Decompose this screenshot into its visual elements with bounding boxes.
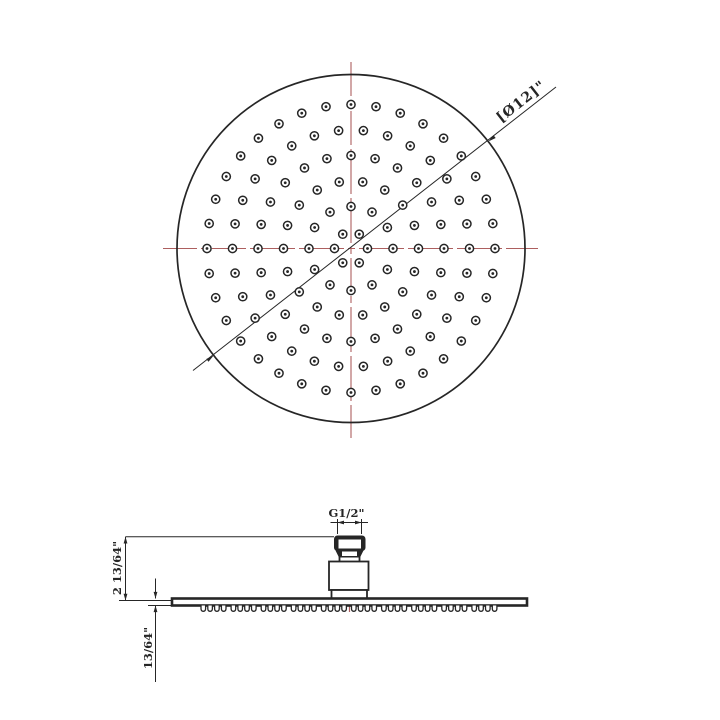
nozzle-hole-dot — [269, 201, 272, 204]
nozzle-hole-dot — [298, 204, 301, 207]
nozzle-tooth — [472, 606, 477, 612]
nozzle-tooth — [358, 606, 363, 612]
nozzle-tooth — [275, 606, 280, 612]
nozzle-hole-dot — [225, 175, 228, 178]
nozzle-hole-dot — [474, 319, 477, 322]
nozzle-hole-dot — [460, 340, 463, 343]
nozzle-hole-dot — [290, 350, 293, 353]
nozzle-hole-dot — [383, 306, 386, 309]
nozzle-hole-dot — [270, 335, 273, 338]
nozzle-tooth — [432, 606, 437, 612]
thread-arrow-right — [355, 521, 362, 525]
nozzle-tooth — [479, 606, 484, 612]
thread-dimension-label: G1/2" — [328, 506, 364, 520]
nozzle-hole-dot — [308, 247, 311, 250]
nozzle-tooth — [402, 606, 407, 612]
nozzle-tooth — [261, 606, 266, 612]
nozzle-hole-dot — [491, 222, 494, 225]
nozzle-tooth — [352, 606, 357, 612]
thickness-arrow-down — [154, 592, 158, 599]
thickness-arrow-up — [154, 606, 158, 613]
nozzle-hole-dot — [429, 159, 432, 162]
nozzle-hole-dot — [409, 144, 412, 147]
nozzle-hole-dot — [350, 340, 353, 343]
nozzle-hole-dot — [278, 122, 281, 125]
nozzle-hole-dot — [341, 261, 344, 264]
nozzle-tooth — [486, 606, 491, 612]
nozzle-hole-dot — [278, 372, 281, 375]
nozzle-tooth — [238, 606, 243, 612]
nozzle-hole-dot — [241, 199, 244, 202]
nozzle-hole-dot — [333, 247, 336, 250]
nozzle-hole-dot — [361, 181, 364, 184]
nozzle-hole-dot — [350, 391, 353, 394]
diameter-dimension-label: [Ø12]" — [494, 78, 550, 126]
nozzle-hole-dot — [362, 365, 365, 368]
nozzle-hole-dot — [329, 283, 332, 286]
nozzle-tooth — [291, 606, 296, 612]
nozzle-hole-dot — [350, 154, 353, 157]
diameter-dimension-line — [193, 87, 556, 371]
nozzle-hole-dot — [316, 306, 319, 309]
nozzle-hole-dot — [396, 328, 399, 331]
nozzle-hole-dot — [401, 290, 404, 293]
nozzle-tooth — [462, 606, 467, 612]
nozzle-hole-dot — [366, 247, 369, 250]
nozzle-hole-dot — [485, 296, 488, 299]
nozzle-tooth — [455, 606, 460, 612]
stem-nut-recess — [342, 552, 357, 557]
nozzle-hole-dot — [282, 247, 285, 250]
height-arrow-down — [124, 594, 128, 601]
nozzle-hole-dot — [313, 226, 316, 229]
nozzle-hole-dot — [303, 328, 306, 331]
nozzle-hole-dot — [206, 247, 209, 250]
nozzle-hole-dot — [399, 382, 402, 385]
nozzle-hole-dot — [234, 222, 237, 225]
nozzle-hole-dot — [284, 181, 287, 184]
nozzle-tooth — [425, 606, 430, 612]
nozzle-tooth — [449, 606, 454, 612]
nozzle-hole-dot — [430, 201, 433, 204]
nozzle-hole-dot — [445, 317, 448, 320]
nozzle-hole-dot — [350, 103, 353, 106]
thread-fitting-recess — [339, 540, 362, 549]
head-plate — [172, 599, 527, 606]
nozzle-hole-dot — [422, 372, 425, 375]
nozzle-hole-dot — [316, 189, 319, 192]
nozzle-tooth — [365, 606, 370, 612]
nozzle-hole-dot — [468, 247, 471, 250]
nozzle-hole-dot — [401, 204, 404, 207]
nozzle-tooth — [305, 606, 310, 612]
nozzle-hole-dot — [386, 134, 389, 137]
nozzle-tooth — [201, 606, 206, 612]
nozzle-hole-dot — [303, 167, 306, 170]
nozzle-hole-dot — [313, 360, 316, 363]
nozzle-hole-dot — [325, 105, 328, 108]
nozzle-tooth — [312, 606, 317, 612]
nozzle-hole-dot — [338, 314, 341, 317]
nozzle-hole-dot — [361, 314, 364, 317]
nozzle-hole-dot — [474, 175, 477, 178]
nozzle-hole-dot — [257, 357, 260, 360]
nozzle-hole-dot — [326, 337, 329, 340]
top-view: [Ø12]" — [163, 62, 556, 438]
nozzle-hole-dot — [386, 226, 389, 229]
nozzle-hole-dot — [260, 271, 263, 274]
nozzle-hole-dot — [466, 222, 469, 225]
nozzle-hole-dot — [300, 382, 303, 385]
nozzle-tooth — [442, 606, 447, 612]
nozzle-hole-dot — [442, 137, 445, 140]
nozzle-hole-dot — [254, 317, 257, 320]
nozzle-hole-dot — [417, 247, 420, 250]
nozzle-hole-dot — [374, 337, 377, 340]
nozzle-hole-dot — [257, 247, 260, 250]
nozzle-hole-dot — [234, 272, 237, 275]
nozzle-hole-dot — [375, 389, 378, 392]
height-arrow-up — [124, 537, 128, 544]
nozzle-hole-dot — [208, 272, 211, 275]
nozzle-hole-dot — [300, 112, 303, 115]
nozzle-hole-dot — [383, 189, 386, 192]
nozzle-hole-dot — [415, 181, 418, 184]
nozzle-hole-dot — [396, 167, 399, 170]
nozzle-hole-dot — [257, 137, 260, 140]
stem-body — [329, 562, 369, 591]
nozzle-tooth — [268, 606, 273, 612]
nozzle-hole-dot — [415, 313, 418, 316]
nozzle-hole-dot — [494, 247, 497, 250]
nozzle-hole-dot — [214, 296, 217, 299]
nozzle-hole-dot — [358, 261, 361, 264]
dimension-arrow-lower — [206, 356, 213, 362]
nozzle-hole-dot — [329, 211, 332, 214]
height-dimension-label: 2 13/64" — [110, 541, 124, 595]
nozzle-hole-dot — [239, 340, 242, 343]
nozzle-hole-dot — [225, 319, 228, 322]
nozzle-hole-dot — [214, 198, 217, 201]
nozzle-tooth — [282, 606, 287, 612]
nozzle-hole-dot — [422, 122, 425, 125]
nozzle-hole-dot — [439, 271, 442, 274]
nozzle-hole-dot — [286, 224, 289, 227]
nozzle-hole-dot — [358, 233, 361, 236]
nozzle-hole-dot — [338, 181, 341, 184]
nozzle-hole-dot — [466, 272, 469, 275]
nozzle-hole-dot — [439, 223, 442, 226]
nozzle-hole-dot — [326, 157, 329, 160]
nozzle-tooth — [342, 606, 347, 612]
nozzle-hole-dot — [260, 223, 263, 226]
nozzle-hole-dot — [290, 144, 293, 147]
nozzle-hole-dot — [350, 289, 353, 292]
nozzle-hole-dot — [442, 357, 445, 360]
nozzle-tooth — [215, 606, 220, 612]
nozzle-hole-dot — [313, 268, 316, 271]
nozzle-hole-dot — [241, 295, 244, 298]
nozzle-hole-dot — [337, 365, 340, 368]
nozzle-tooth — [335, 606, 340, 612]
nozzle-hole-dot — [254, 177, 257, 180]
nozzle-hole-dot — [325, 389, 328, 392]
nozzle-hole-dot — [429, 335, 432, 338]
nozzle-tooth — [252, 606, 257, 612]
nozzle-hole-dot — [208, 222, 211, 225]
nozzle-hole-dot — [485, 198, 488, 201]
nozzle-hole-dot — [284, 313, 287, 316]
nozzle-hole-dot — [337, 129, 340, 132]
nozzle-hole-dot — [430, 294, 433, 297]
nozzle-hole-dot — [350, 205, 353, 208]
technical-drawing: [Ø12]" 2 13/64" 13/64" G1/2" — [0, 0, 720, 720]
nozzle-hole-dot — [269, 294, 272, 297]
thickness-dimension-label: 13/64" — [141, 627, 155, 669]
nozzle-hole-dot — [445, 177, 448, 180]
nozzle-hole-dot — [375, 105, 378, 108]
drawing-canvas: [Ø12]" 2 13/64" 13/64" G1/2" — [0, 0, 720, 720]
nozzle-hole-dot — [270, 159, 273, 162]
nozzle-tooth — [328, 606, 333, 612]
nozzle-tooth — [208, 606, 213, 612]
nozzle-hole-dot — [362, 129, 365, 132]
nozzle-tooth — [382, 606, 387, 612]
nozzle-tooth — [412, 606, 417, 612]
nozzle-hole-dot — [399, 112, 402, 115]
nozzle-tooth — [221, 606, 226, 612]
nozzle-hole-dot — [413, 270, 416, 273]
nozzle-hole-dot — [298, 290, 301, 293]
nozzle-hole-dot — [413, 224, 416, 227]
nozzle-hole-dot — [409, 350, 412, 353]
nozzle-hole-dot — [458, 199, 461, 202]
side-view: 2 13/64" 13/64" G1/2" — [110, 506, 527, 682]
dimension-arrow-upper — [488, 135, 495, 141]
nozzle-tooth — [388, 606, 393, 612]
nozzle-hole-dot — [386, 360, 389, 363]
nozzle-hole-dot — [374, 157, 377, 160]
nozzle-hole-dot — [443, 247, 446, 250]
nozzle-hole-dot — [231, 247, 234, 250]
thread-arrow-left — [338, 521, 345, 525]
nozzle-tooth — [419, 606, 424, 612]
nozzle-tooth — [231, 606, 236, 612]
nozzle-hole-dot — [239, 155, 242, 158]
nozzle-tooth — [492, 606, 497, 612]
nozzle-hole-dot — [371, 283, 374, 286]
nozzle-tooth — [321, 606, 326, 612]
nozzle-tooth — [245, 606, 250, 612]
nozzle-hole-dot — [313, 134, 316, 137]
nozzle-hole-dot — [460, 155, 463, 158]
nozzle-hole-dot — [386, 268, 389, 271]
nozzle-hole-dot — [286, 270, 289, 273]
nozzle-hole-dot — [341, 233, 344, 236]
nozzle-hole-dot — [458, 295, 461, 298]
nozzle-tooth — [372, 606, 377, 612]
nozzle-hole-dot — [491, 272, 494, 275]
nozzle-hole-dot — [392, 247, 395, 250]
nozzle-tooth — [298, 606, 303, 612]
nozzle-tooth — [395, 606, 400, 612]
nozzle-hole-dot — [371, 211, 374, 214]
